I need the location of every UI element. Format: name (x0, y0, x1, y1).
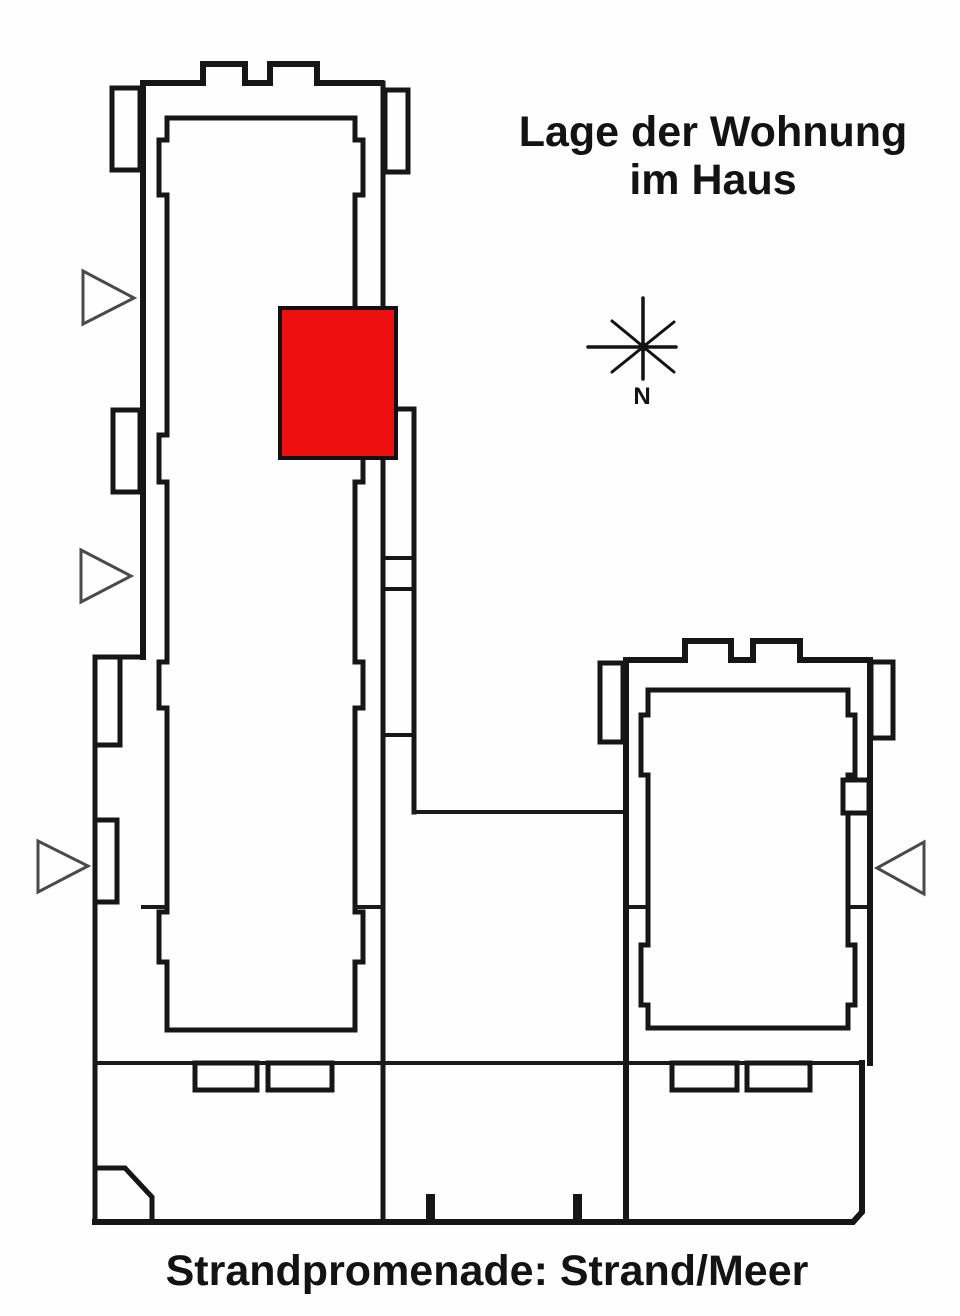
compass-center (639, 343, 648, 352)
terrace (747, 1063, 810, 1090)
balcony (112, 88, 140, 170)
apartment-marker (280, 308, 396, 458)
balcony (95, 820, 117, 902)
corridor-wall (397, 409, 414, 812)
terrace (268, 1063, 332, 1090)
right-wing-inner-outline (641, 690, 855, 1028)
balcony (871, 662, 893, 738)
page-title-line2: im Haus (629, 156, 796, 204)
balcony (113, 410, 140, 492)
terrace (195, 1063, 257, 1090)
promenade-caption: Strandpromenade: Strand/Meer (166, 1247, 809, 1295)
floor-plan-page: N Lage der Wohnung im Haus Strandpromena… (0, 0, 960, 1316)
compass-north-label: N (633, 383, 650, 410)
entrance-arrow-icon (877, 842, 924, 894)
compass-rose-icon: N (588, 298, 676, 410)
building-plan (95, 64, 893, 1222)
door-stub (426, 1194, 435, 1222)
door-stub (573, 1194, 582, 1222)
balcony (95, 657, 120, 745)
bevel-corner-wall (97, 1168, 152, 1222)
entrance-arrow-icon (38, 841, 88, 892)
left-wing-inner-outline (159, 118, 363, 1030)
floor-plan-canvas: N Lage der Wohnung im Haus Strandpromena… (0, 0, 960, 1316)
page-title-line1: Lage der Wohnung (519, 108, 908, 156)
right-wing-outer-wall (626, 641, 870, 1222)
terrace (672, 1063, 737, 1090)
balcony (385, 90, 408, 172)
entrance-arrow-icon (83, 271, 134, 324)
stair-cross-walls (385, 558, 412, 735)
entrance-arrow-icon (81, 550, 131, 602)
balcony (843, 780, 869, 813)
balcony (600, 663, 623, 742)
